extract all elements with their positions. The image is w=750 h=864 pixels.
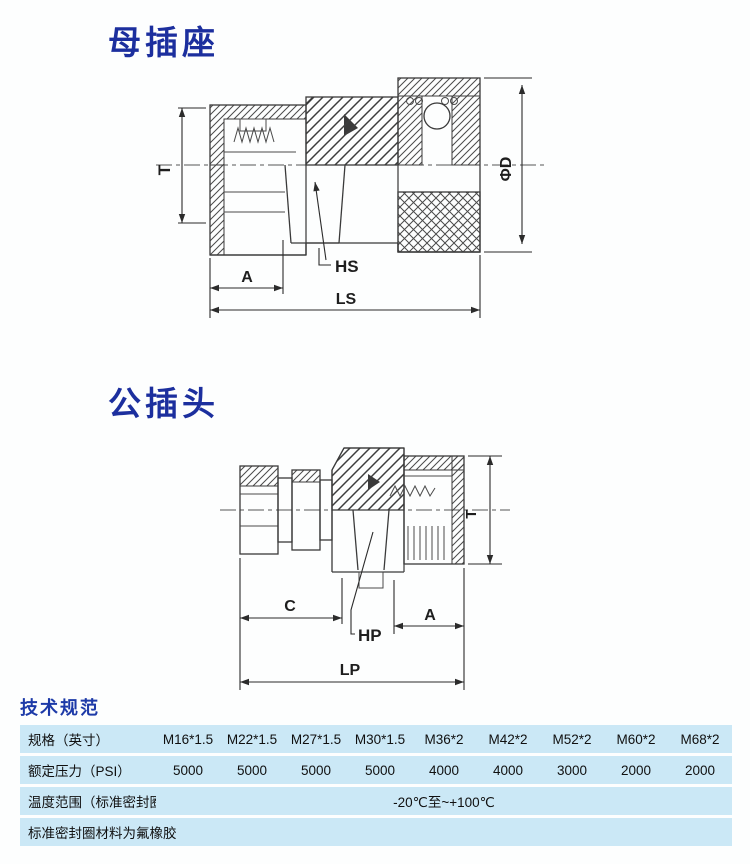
spec-row-temperature-label: 温度范围（标准密封圈）	[20, 787, 156, 815]
spec-size-value: M36*2	[412, 725, 476, 753]
dim-label-ls: LS	[336, 291, 357, 308]
dim-label-t-male: T	[463, 509, 480, 518]
dim-label-lp: LP	[340, 662, 361, 679]
spec-size-value: M52*2	[540, 725, 604, 753]
spec-row-size-label: 规格（英寸）	[20, 725, 156, 753]
specs-title: 技术规范	[20, 694, 100, 720]
male-plug-drawing: T C A LP	[218, 430, 518, 725]
male-body-section	[240, 448, 464, 588]
spec-pressure-value: 5000	[220, 756, 284, 784]
spec-size-value: M30*1.5	[348, 725, 412, 753]
spec-size-value: M68*2	[668, 725, 732, 753]
catalog-page: 母插座	[0, 0, 750, 864]
dim-label-c: C	[284, 598, 296, 615]
label-hp: HP	[358, 626, 382, 645]
spec-pressure-value: 5000	[284, 756, 348, 784]
label-hs: HS	[335, 257, 359, 276]
spec-row-pressure: 额定压力（PSI） 5000 5000 5000 5000 4000 4000 …	[20, 756, 732, 784]
spec-pressure-value: 3000	[540, 756, 604, 784]
female-body-section	[210, 78, 480, 255]
spec-row-size: 规格（英寸） M16*1.5 M22*1.5 M27*1.5 M30*1.5 M…	[20, 725, 732, 753]
spec-table: 规格（英寸） M16*1.5 M22*1.5 M27*1.5 M30*1.5 M…	[20, 722, 732, 849]
male-plug-title: 公插头	[108, 377, 219, 425]
dim-label-a-female: A	[241, 269, 253, 286]
spec-pressure-value: 5000	[348, 756, 412, 784]
spec-size-value: M22*1.5	[220, 725, 284, 753]
spec-pressure-value: 4000	[476, 756, 540, 784]
spec-row-pressure-label: 额定压力（PSI）	[20, 756, 156, 784]
spec-pressure-value: 2000	[604, 756, 668, 784]
dim-label-a-male: A	[424, 607, 436, 624]
spec-size-value: M60*2	[604, 725, 668, 753]
spec-pressure-value: 2000	[668, 756, 732, 784]
spec-row-material: 标准密封圈材料为氟橡胶	[20, 818, 732, 846]
spec-temperature-value: -20℃至~+100℃	[156, 787, 732, 815]
spec-row-temperature: 温度范围（标准密封圈） -20℃至~+100℃	[20, 787, 732, 815]
spec-pressure-value: 4000	[412, 756, 476, 784]
dim-label-phid: ΦD	[498, 157, 515, 182]
spec-size-value: M42*2	[476, 725, 540, 753]
spec-size-value: M16*1.5	[156, 725, 220, 753]
female-socket-drawing: T ΦD A LS	[148, 72, 558, 339]
spec-size-value: M27*1.5	[284, 725, 348, 753]
female-socket-title: 母插座	[108, 16, 219, 64]
dim-label-t-female: T	[155, 164, 174, 175]
spec-pressure-value: 5000	[156, 756, 220, 784]
spec-row-material-label: 标准密封圈材料为氟橡胶	[20, 818, 732, 846]
